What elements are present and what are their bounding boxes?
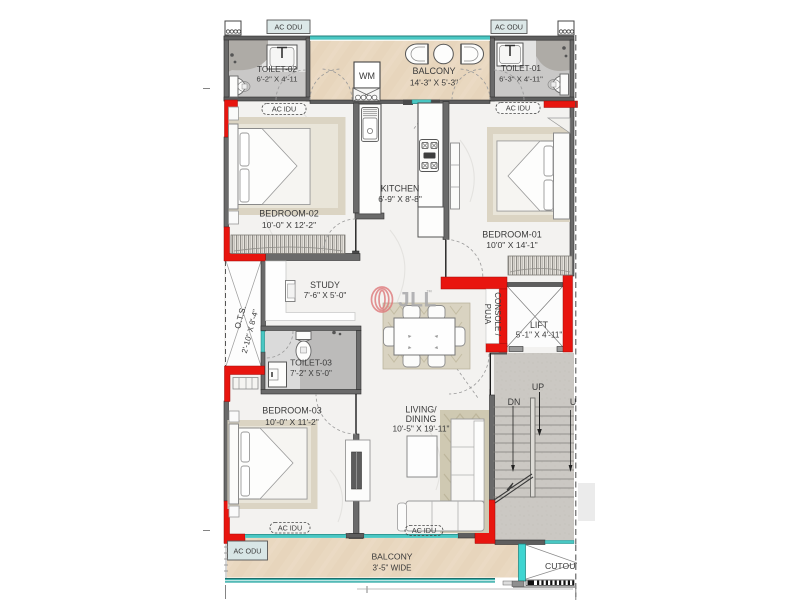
svg-text:DN: DN: [508, 397, 521, 407]
svg-text:10'-0" X 11'-2": 10'-0" X 11'-2": [265, 417, 319, 427]
svg-text:10'-5" X 19'-11": 10'-5" X 19'-11": [393, 424, 450, 434]
svg-text:AC IDU: AC IDU: [278, 524, 302, 533]
svg-text:AC ODU: AC ODU: [275, 23, 303, 32]
svg-text:7'-2" X 5'-0": 7'-2" X 5'-0": [290, 369, 332, 378]
svg-text:6'-9" X 8'-8": 6'-9" X 8'-8": [378, 194, 422, 204]
svg-text:WM: WM: [359, 71, 375, 81]
svg-text:14'-3" X 5'-3": 14'-3" X 5'-3": [410, 78, 458, 88]
svg-text:BEDROOM-01: BEDROOM-01: [482, 230, 542, 240]
svg-text:TOILET-01: TOILET-01: [501, 64, 541, 73]
svg-text:AC ODU: AC ODU: [495, 23, 523, 32]
svg-text:BEDROOM-03: BEDROOM-03: [262, 406, 322, 416]
svg-text:AC IDU: AC IDU: [412, 526, 436, 535]
svg-text:™: ™: [426, 289, 432, 296]
svg-text:AC IDU: AC IDU: [506, 104, 530, 113]
svg-text:BALCONY: BALCONY: [371, 552, 412, 562]
svg-text:LIVING/: LIVING/: [405, 405, 437, 415]
svg-text:AC ODU: AC ODU: [234, 547, 262, 556]
svg-text:PUJA: PUJA: [483, 304, 492, 325]
svg-text:5'-1" X 4'-11": 5'-1" X 4'-11": [516, 331, 563, 340]
svg-text:BALCONY: BALCONY: [412, 66, 455, 76]
svg-text:CONSOLE /: CONSOLE /: [493, 292, 502, 336]
svg-text:U: U: [570, 397, 576, 407]
svg-text:LIFT: LIFT: [530, 320, 549, 330]
svg-text:10'-0" X 12'-2": 10'-0" X 12'-2": [262, 220, 316, 230]
svg-text:3'-5" WIDE: 3'-5" WIDE: [372, 564, 411, 573]
svg-text:10'0" X 14'-1": 10'0" X 14'-1": [486, 240, 537, 250]
svg-text:6'-3" X 4'-11": 6'-3" X 4'-11": [499, 75, 543, 84]
svg-text:BEDROOM-02: BEDROOM-02: [259, 209, 319, 219]
svg-text:7'-6" X 5'-0": 7'-6" X 5'-0": [304, 291, 347, 300]
svg-text:UP: UP: [532, 382, 544, 392]
svg-text:TOILET-02: TOILET-02: [257, 65, 297, 74]
svg-text:DINING: DINING: [406, 414, 437, 424]
svg-text:TOILET-03: TOILET-03: [290, 358, 332, 368]
svg-text:AC IDU: AC IDU: [272, 105, 296, 114]
svg-text:KITCHEN: KITCHEN: [381, 184, 420, 194]
svg-text:STUDY: STUDY: [310, 280, 340, 290]
svg-text:6'-2" X 4'-11: 6'-2" X 4'-11: [257, 75, 298, 84]
